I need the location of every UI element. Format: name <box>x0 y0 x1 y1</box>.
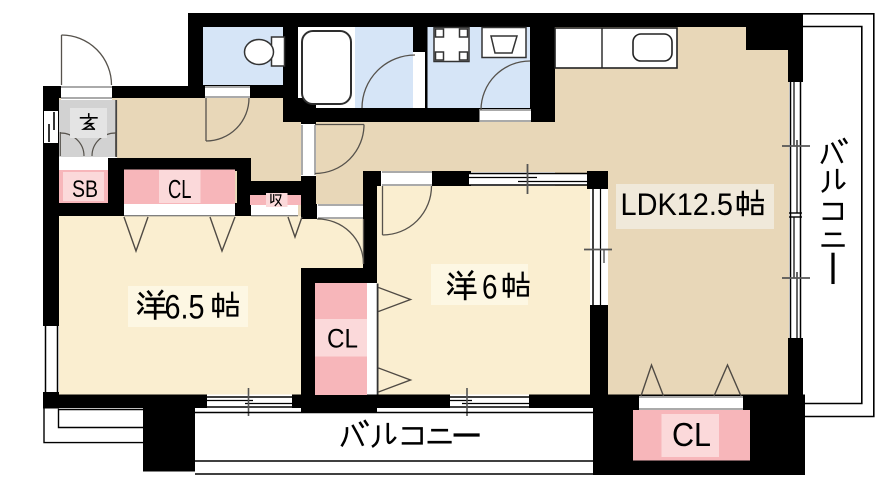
svg-text:CL: CL <box>327 324 358 354</box>
svg-text:LDK12.5: LDK12.5 <box>621 186 734 222</box>
svg-text:CL: CL <box>168 174 192 204</box>
svg-text:CL: CL <box>672 416 711 453</box>
svg-text:SB: SB <box>72 176 98 203</box>
svg-text:6: 6 <box>482 269 498 307</box>
svg-text:6.5: 6.5 <box>165 289 205 327</box>
